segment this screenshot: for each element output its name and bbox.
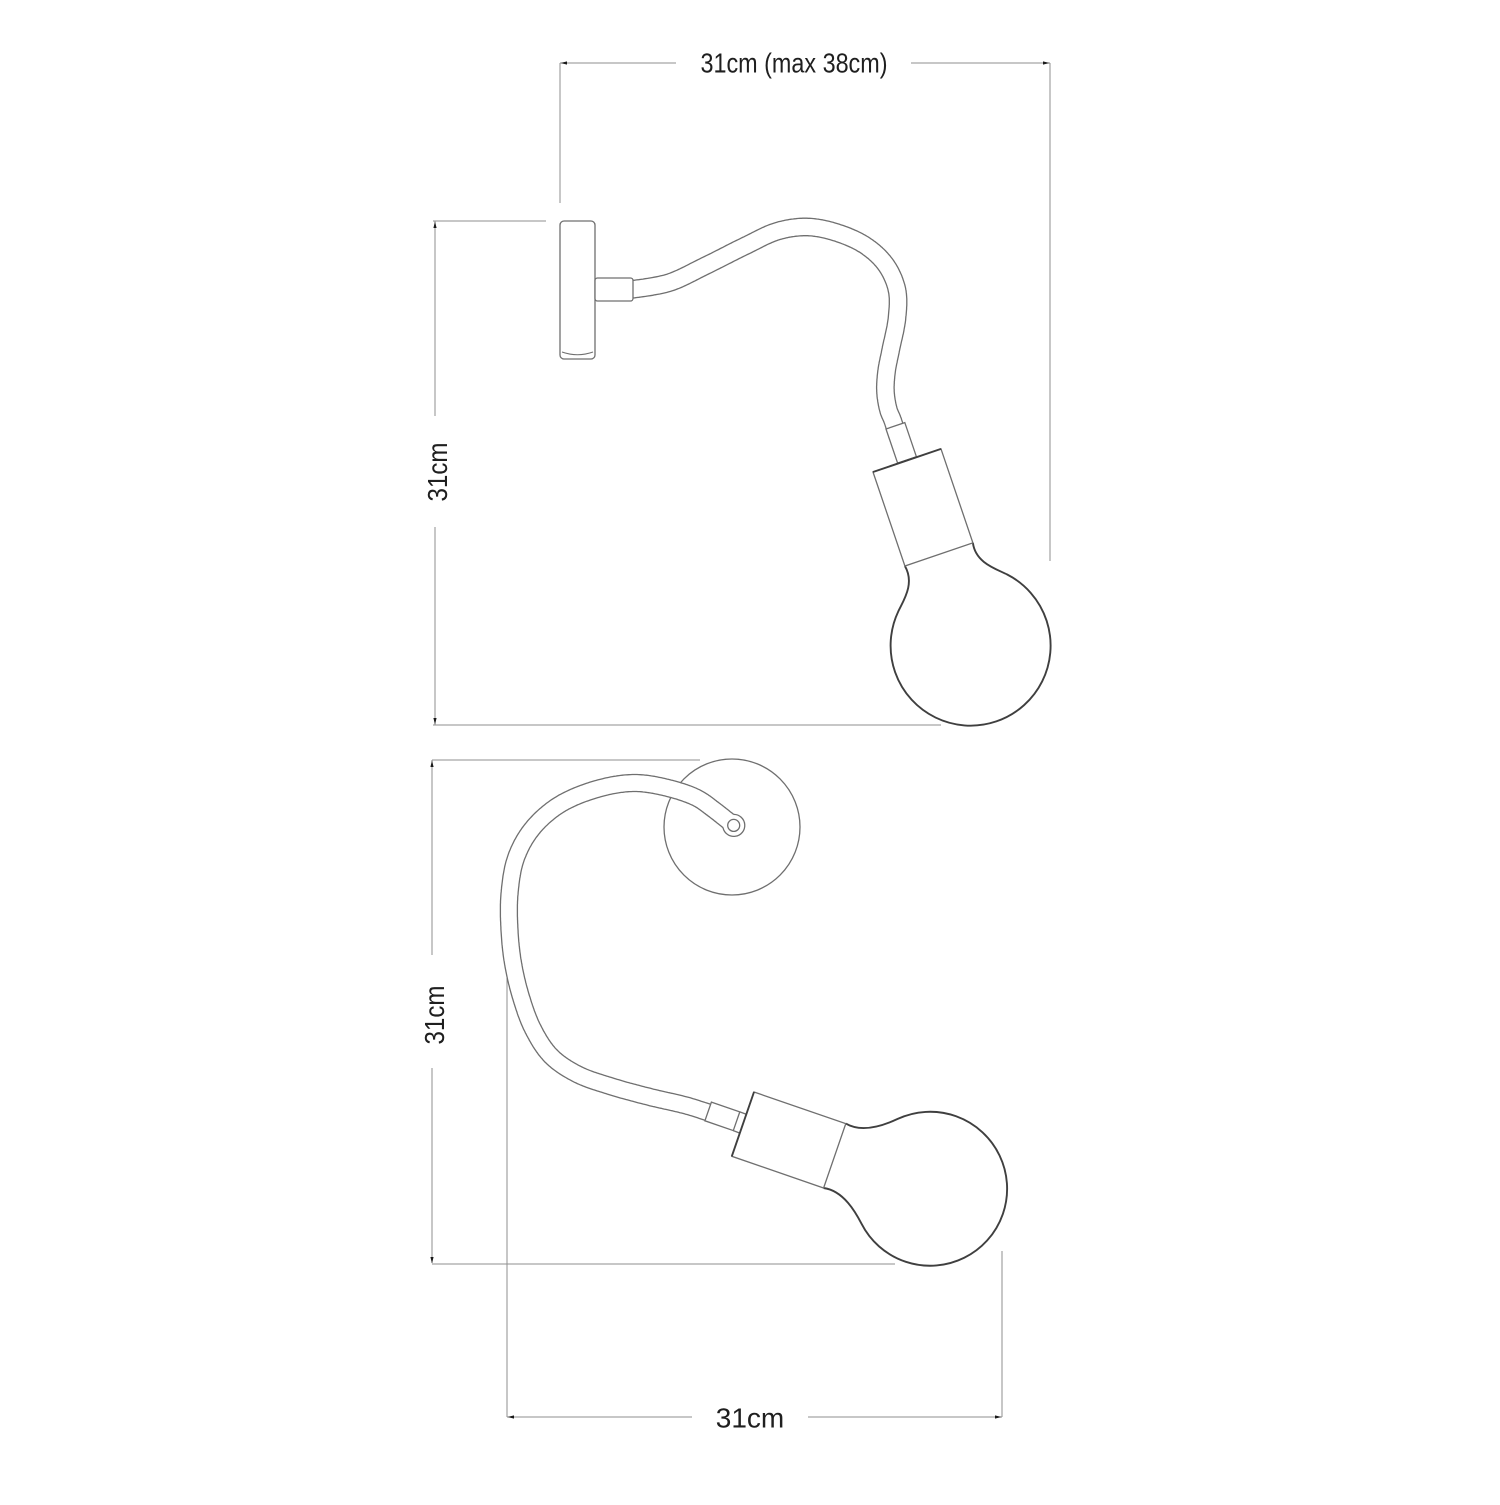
svg-text:31cm: 31cm <box>716 1403 784 1434</box>
svg-text:31cm: 31cm <box>422 443 453 502</box>
svg-text:31cm: 31cm <box>419 986 450 1045</box>
svg-text:31cm (max 38cm): 31cm (max 38cm) <box>701 48 888 79</box>
